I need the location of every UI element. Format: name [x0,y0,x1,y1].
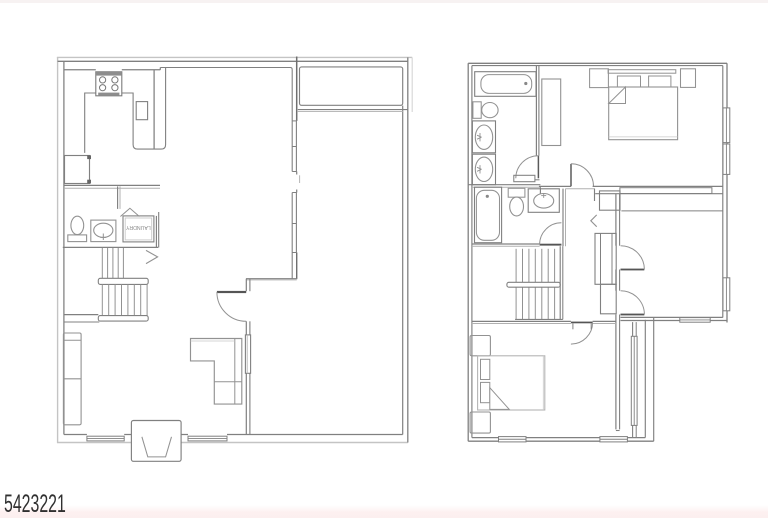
svg-text:LAUNDRY: LAUNDRY [126,224,151,230]
